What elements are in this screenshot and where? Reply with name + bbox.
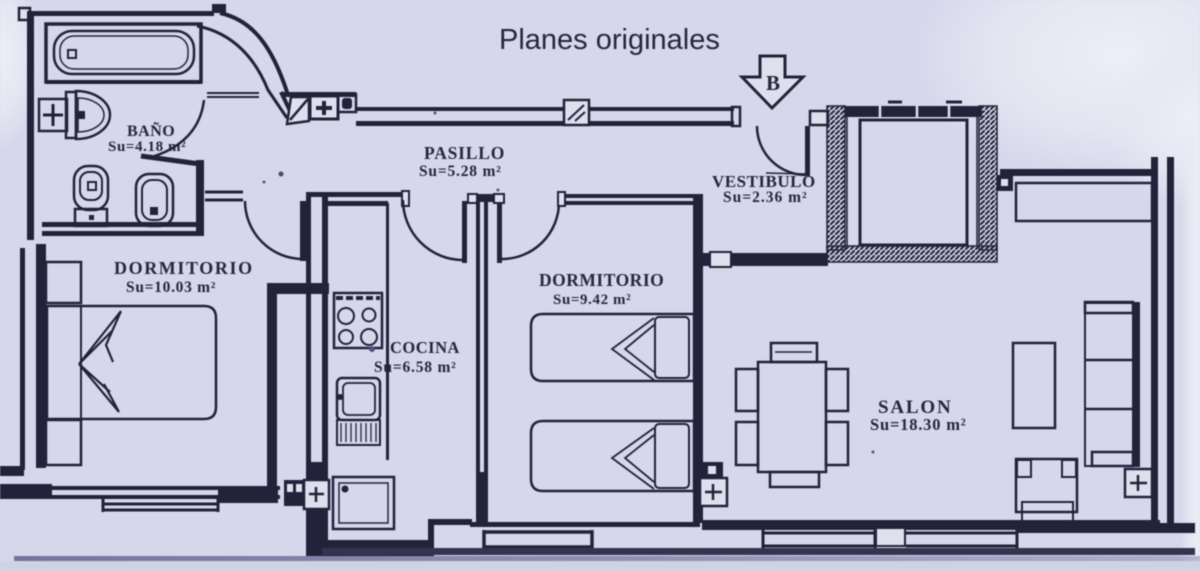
svg-text:PASILLO: PASILLO (424, 143, 505, 163)
svg-text:Su=10.03 m²: Su=10.03 m² (126, 279, 216, 296)
svg-text:Su=18.30 m²: Su=18.30 m² (870, 415, 967, 434)
svg-text:DORMITORIO: DORMITORIO (114, 258, 254, 278)
svg-text:DORMITORIO: DORMITORIO (539, 270, 664, 290)
svg-text:Su=9.42 m²: Su=9.42 m² (553, 292, 631, 308)
svg-text:COCINA: COCINA (390, 338, 460, 357)
svg-text:Su=2.36 m²: Su=2.36 m² (723, 189, 808, 206)
svg-text:Su=6.58 m²: Su=6.58 m² (374, 359, 457, 376)
svg-text:B: B (766, 71, 780, 95)
svg-text:Planes originales: Planes originales (499, 24, 720, 56)
svg-text:BAÑO: BAÑO (127, 121, 175, 140)
svg-text:Su=5.28 m²: Su=5.28 m² (419, 163, 502, 180)
